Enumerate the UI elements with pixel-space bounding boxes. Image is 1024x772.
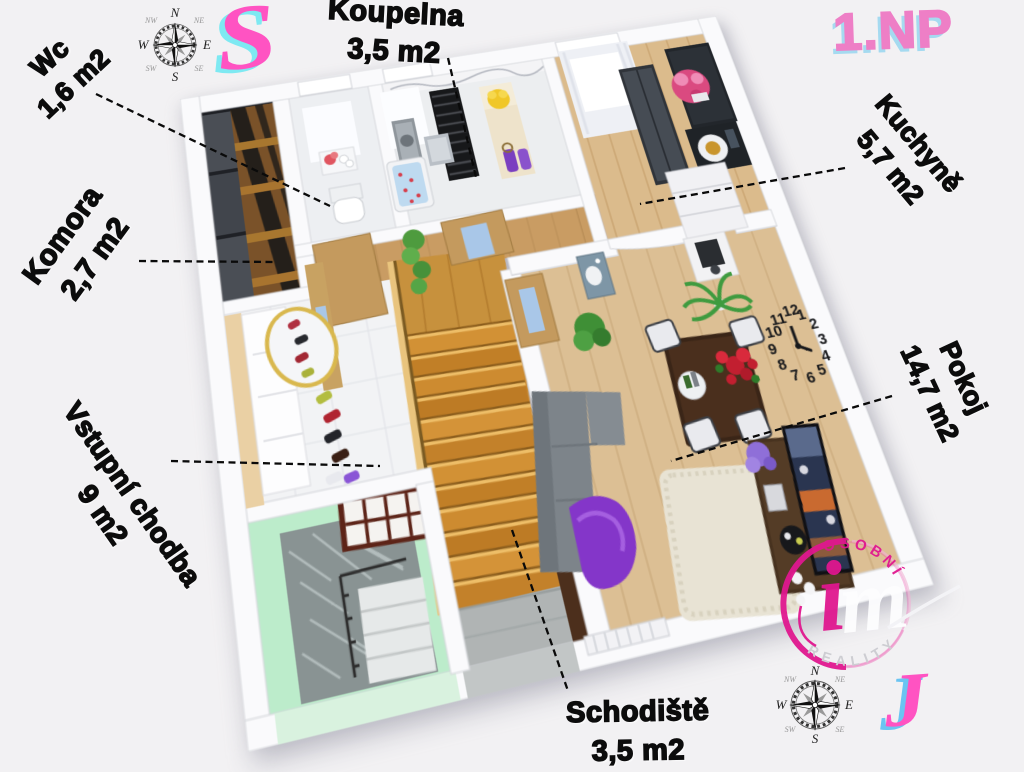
svg-text:S: S [812, 731, 819, 746]
svg-text:N: N [170, 5, 181, 20]
svg-text:NE: NE [193, 16, 204, 25]
svg-text:SW: SW [146, 64, 158, 73]
svg-text:NW: NW [144, 16, 158, 25]
svg-text:W: W [776, 697, 788, 712]
svg-text:NW: NW [783, 675, 797, 684]
svg-text:N: N [810, 663, 821, 678]
svg-text:SW: SW [785, 725, 797, 734]
svg-text:S: S [172, 69, 179, 84]
svg-text:NE: NE [834, 675, 845, 684]
svg-text:SE: SE [195, 64, 204, 73]
svg-text:E: E [844, 697, 853, 712]
svg-text:E: E [202, 37, 211, 52]
svg-text:SE: SE [836, 725, 845, 734]
svg-text:W: W [138, 37, 150, 52]
svg-text:m: m [835, 549, 913, 653]
